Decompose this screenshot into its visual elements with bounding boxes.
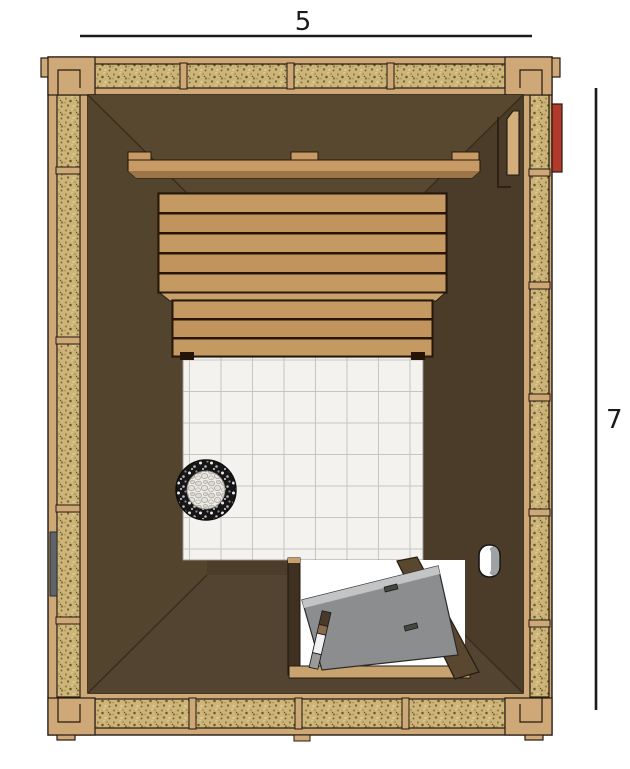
corner-post-bottom-right <box>505 698 552 735</box>
corner-post-top-right <box>505 57 552 95</box>
bench-foot-right <box>411 352 425 360</box>
heater-center-stones <box>187 471 225 509</box>
sauna-floor-plan-page: 5 7 <box>0 0 630 769</box>
lower-bench-planks <box>174 302 432 356</box>
height-dimension-label: 7 <box>606 405 623 435</box>
sauna-plan-figure: 5 7 <box>0 0 630 769</box>
sauna-structure <box>41 57 562 741</box>
insulation-left <box>57 95 80 697</box>
insulation-top <box>95 64 505 88</box>
sauna-heater <box>176 460 236 520</box>
door-jamb-left <box>288 558 300 675</box>
rail-board-bevel <box>128 171 480 178</box>
threshold-tab <box>294 735 310 741</box>
red-fixture <box>552 104 562 172</box>
width-dimension-label: 5 <box>295 7 312 37</box>
bench-foot-left <box>180 352 194 360</box>
lower-bench <box>172 300 433 360</box>
corner-post-top-left <box>48 57 95 95</box>
vent-slider <box>507 111 519 175</box>
tile-floor <box>183 357 423 560</box>
corner-post-bottom-left <box>48 698 95 735</box>
upper-bench-planks <box>160 195 446 292</box>
wall-knob <box>479 545 500 577</box>
door-jamb-left-cap <box>288 558 300 563</box>
exterior-hinge-plate <box>50 532 57 596</box>
upper-bench <box>158 193 447 293</box>
